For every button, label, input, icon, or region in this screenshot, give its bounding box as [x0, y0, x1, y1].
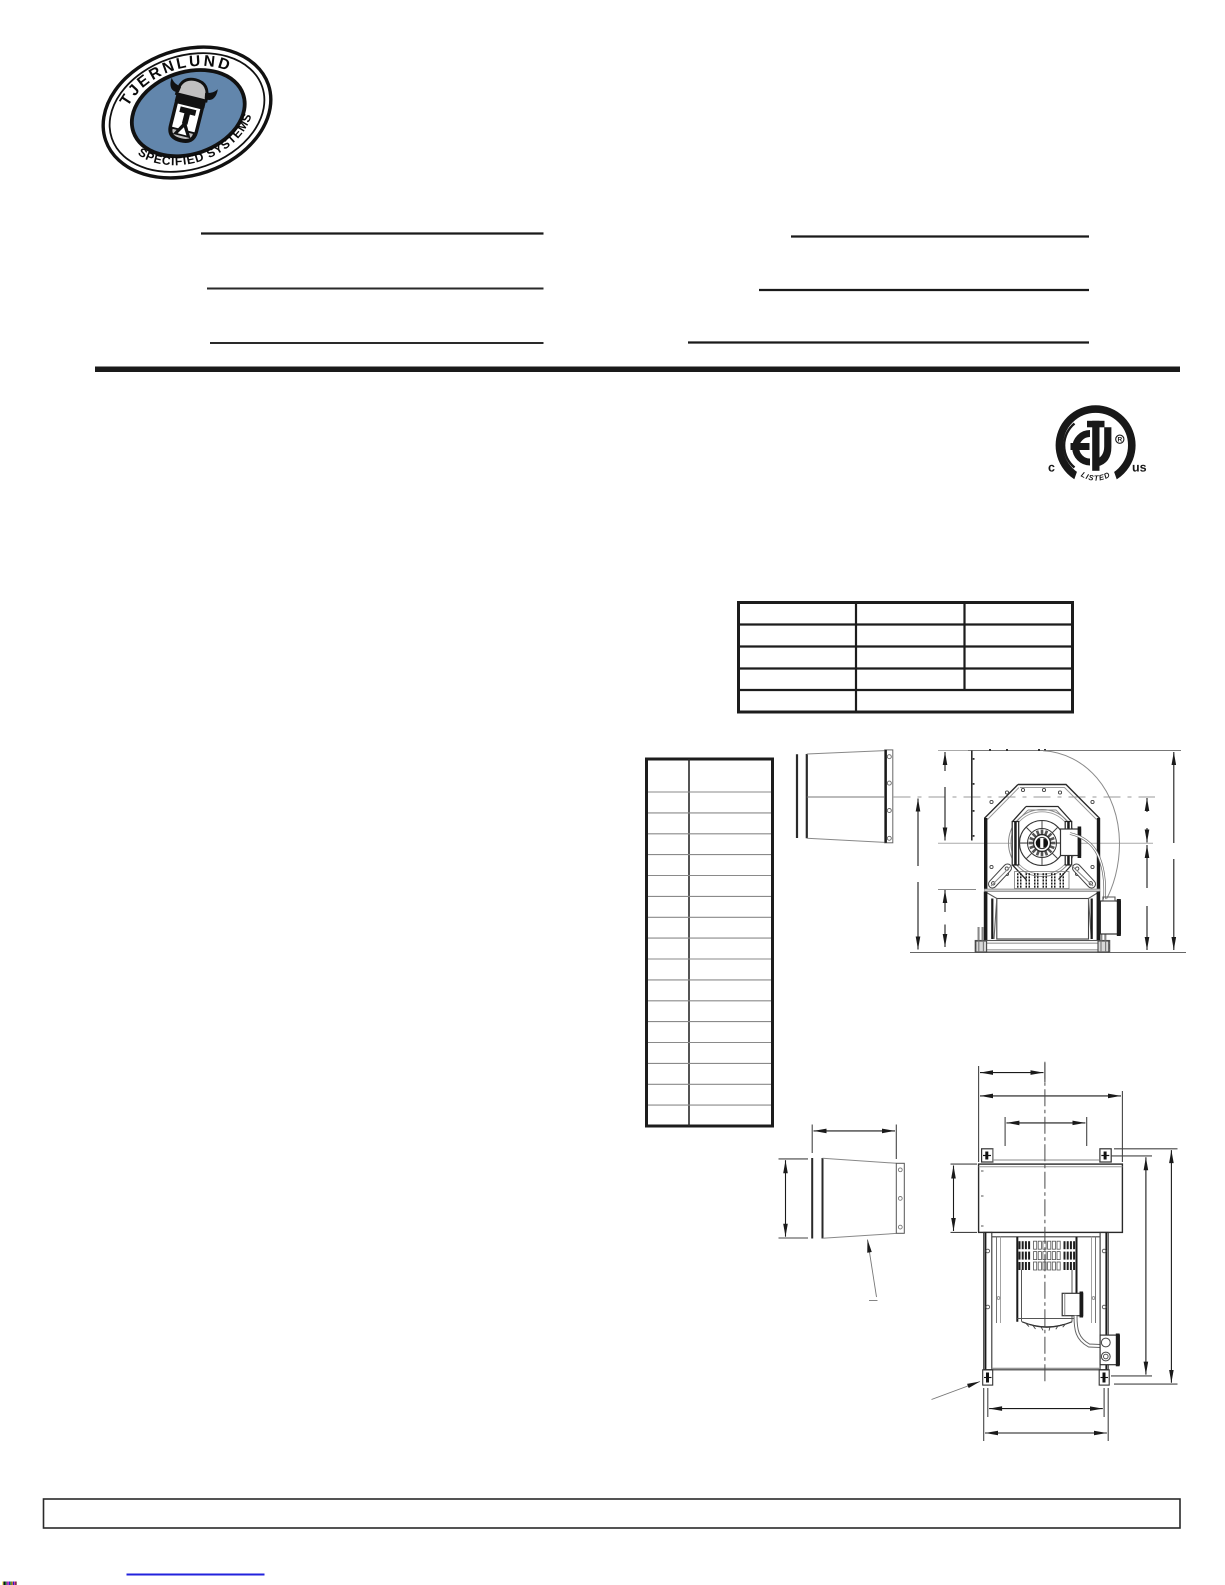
svg-text:us: us: [1132, 461, 1147, 475]
svg-text:R: R: [1117, 437, 1122, 444]
svg-text:c: c: [1048, 461, 1055, 475]
